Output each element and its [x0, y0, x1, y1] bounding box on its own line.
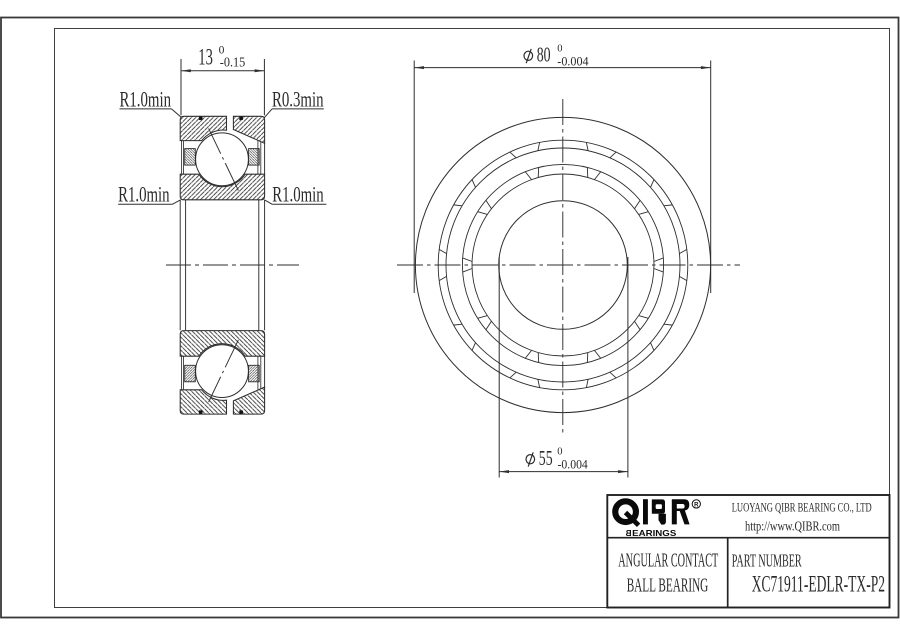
- svg-text:BALL BEARING: BALL BEARING: [627, 575, 709, 597]
- svg-text:http://www.QIBR.com: http://www.QIBR.com: [745, 519, 841, 534]
- svg-text:XC71911-EDLR-TX-P2: XC71911-EDLR-TX-P2: [752, 572, 885, 597]
- svg-text:0: 0: [557, 43, 562, 54]
- svg-text:-0.15: -0.15: [220, 55, 246, 70]
- svg-text:80: 80: [537, 43, 551, 67]
- svg-text:LUOYANG QIBR BEARING CO., LTD: LUOYANG QIBR BEARING CO., LTD: [732, 501, 872, 515]
- svg-text:55: 55: [539, 446, 553, 470]
- svg-text:R1.0min: R1.0min: [272, 182, 324, 207]
- svg-text:R0.3min: R0.3min: [272, 87, 324, 112]
- svg-text:ANGULAR CONTACT: ANGULAR CONTACT: [618, 550, 718, 572]
- svg-text:R: R: [694, 502, 699, 508]
- svg-text:EARINGS: EARINGS: [632, 529, 677, 538]
- svg-text:B: B: [626, 529, 632, 538]
- svg-text:R1.0min: R1.0min: [120, 87, 172, 112]
- svg-text:PART NUMBER: PART NUMBER: [732, 551, 802, 571]
- svg-text:-0.004: -0.004: [557, 54, 589, 68]
- svg-text:R1.0min: R1.0min: [118, 182, 170, 207]
- svg-text:-0.004: -0.004: [558, 458, 589, 472]
- svg-text:13: 13: [198, 45, 213, 70]
- svg-text:0: 0: [557, 446, 562, 457]
